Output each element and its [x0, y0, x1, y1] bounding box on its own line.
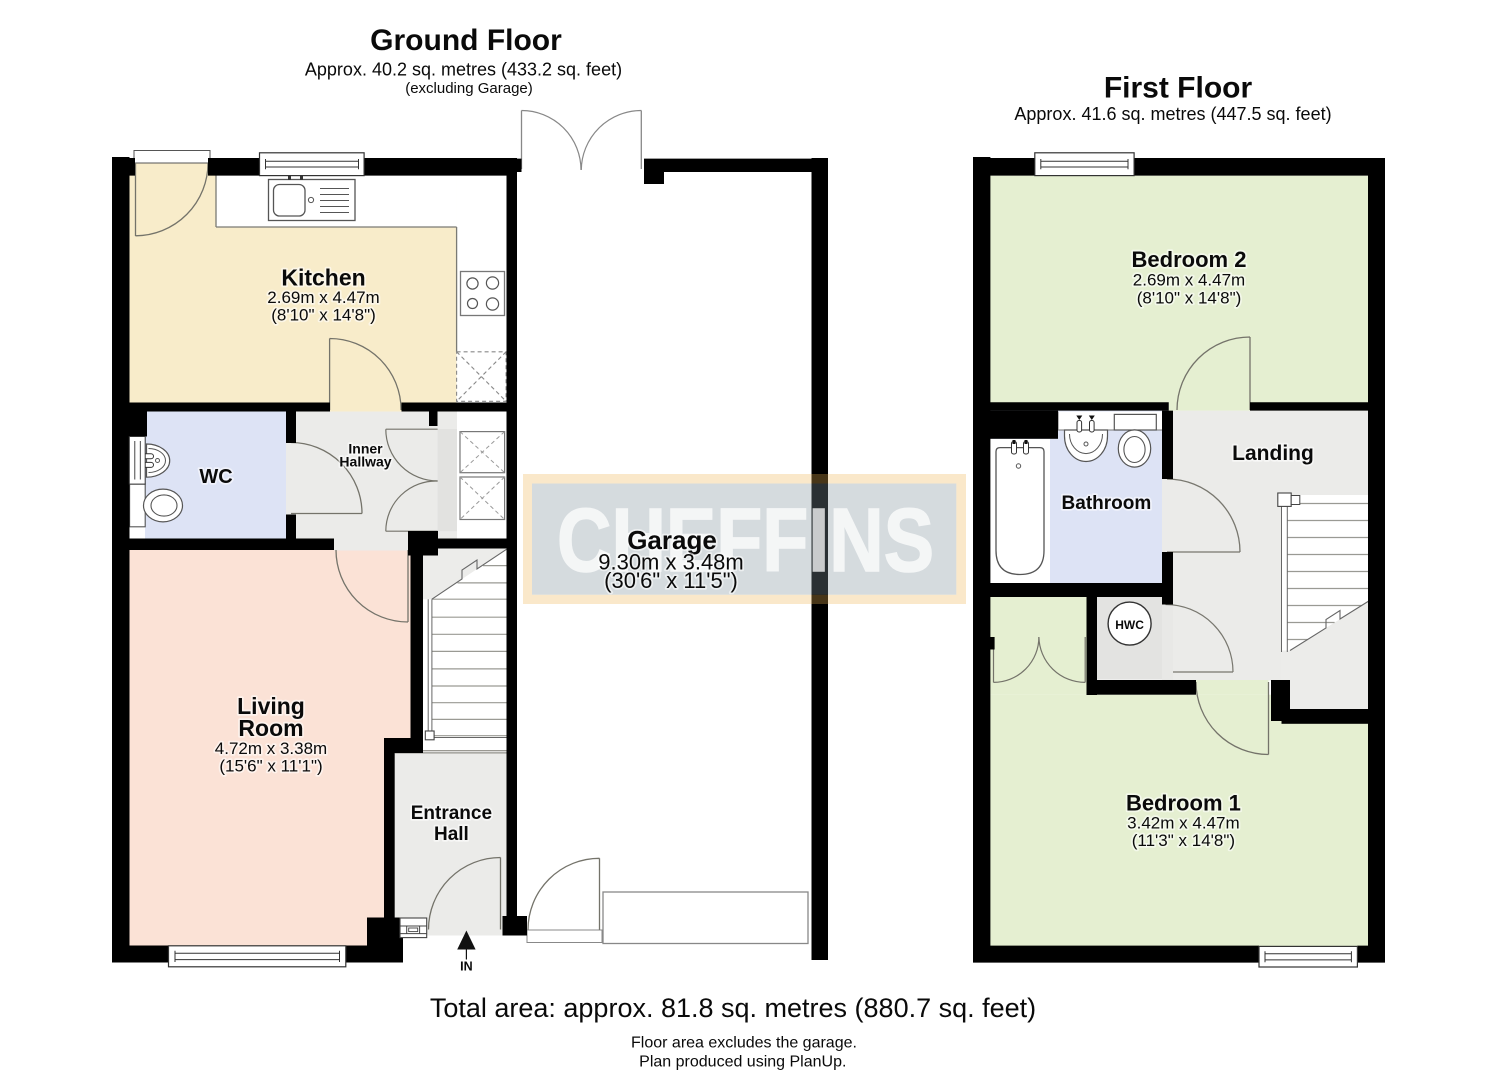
- svg-text:First Floor: First Floor: [1104, 72, 1253, 105]
- svg-text:Entrance: Entrance: [411, 803, 492, 824]
- svg-text:(excluding Garage): (excluding Garage): [405, 80, 533, 97]
- svg-text:Approx. 41.6 sq. metres (447.5: Approx. 41.6 sq. metres (447.5 sq. feet): [1014, 104, 1331, 124]
- svg-text:Hallway: Hallway: [339, 454, 391, 470]
- svg-text:4.72m x 3.38m: 4.72m x 3.38m: [215, 739, 327, 758]
- svg-text:Ground Floor: Ground Floor: [370, 24, 562, 57]
- svg-text:Plan produced using PlanUp.: Plan produced using PlanUp.: [639, 1054, 846, 1071]
- svg-text:(11'3" x 14'8"): (11'3" x 14'8"): [1132, 831, 1235, 850]
- svg-text:Hall: Hall: [434, 824, 469, 845]
- svg-text:Bathroom: Bathroom: [1062, 493, 1152, 514]
- svg-text:3.42m x 4.47m: 3.42m x 4.47m: [1127, 814, 1239, 833]
- svg-text:(8'10" x 14'8"): (8'10" x 14'8"): [1137, 289, 1242, 308]
- svg-text:IN: IN: [460, 960, 473, 974]
- svg-text:Landing: Landing: [1232, 442, 1314, 465]
- svg-text:Kitchen: Kitchen: [281, 265, 365, 291]
- svg-text:(8'10" x 14'8"): (8'10" x 14'8"): [271, 306, 376, 325]
- svg-text:2.69m x 4.47m: 2.69m x 4.47m: [267, 288, 379, 307]
- svg-text:WC: WC: [199, 466, 232, 488]
- svg-text:Floor area excludes the garage: Floor area excludes the garage.: [631, 1035, 857, 1052]
- svg-text:(30'6" x 11'5"): (30'6" x 11'5"): [604, 568, 738, 593]
- svg-text:Bedroom 2: Bedroom 2: [1132, 247, 1247, 272]
- svg-text:2.69m x 4.47m: 2.69m x 4.47m: [1133, 271, 1245, 290]
- svg-text:Total area: approx. 81.8 sq. m: Total area: approx. 81.8 sq. metres (880…: [430, 993, 1036, 1023]
- svg-text:HWC: HWC: [1115, 618, 1144, 632]
- svg-text:Room: Room: [238, 715, 303, 741]
- svg-text:Approx. 40.2 sq. metres (433.2: Approx. 40.2 sq. metres (433.2 sq. feet): [305, 60, 622, 80]
- svg-text:Bedroom 1: Bedroom 1: [1126, 791, 1241, 816]
- svg-text:(15'6" x 11'1"): (15'6" x 11'1"): [219, 757, 322, 776]
